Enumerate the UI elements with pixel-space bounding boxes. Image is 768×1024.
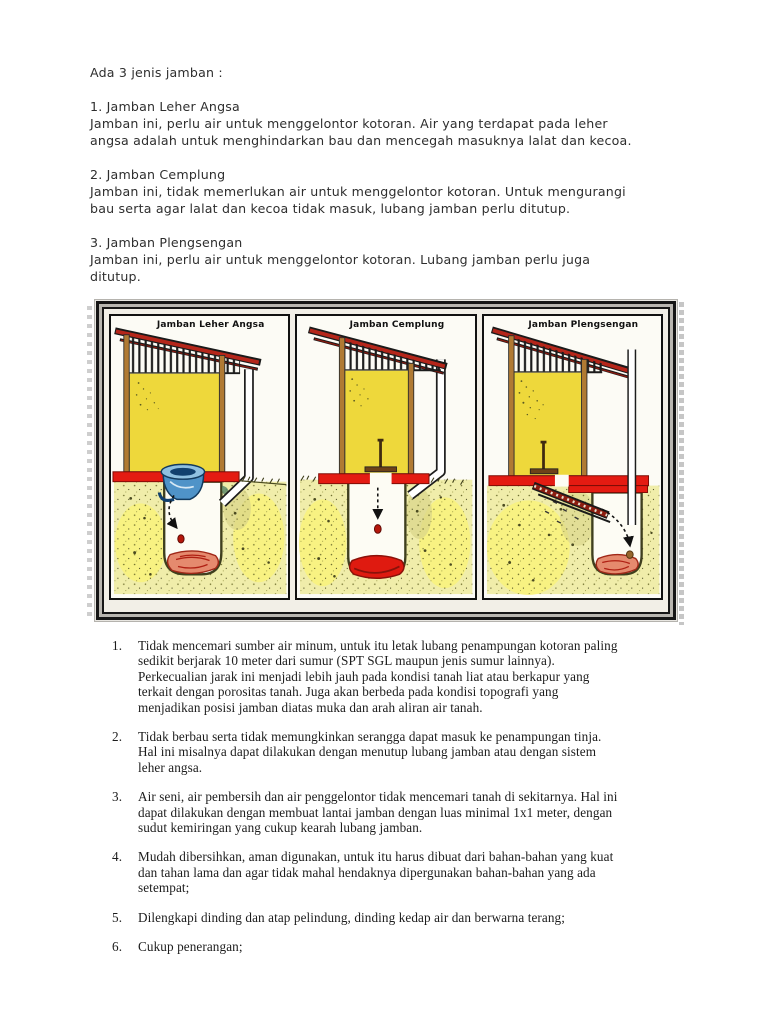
list-item-text: Cukup penerangan; <box>138 939 684 954</box>
requirements-list: 1. Tidak mencemari sumber air minum, unt… <box>112 638 684 969</box>
document-page: Ada 3 jenis jamban : 1. Jamban Leher Ang… <box>0 0 768 1024</box>
list-item: 2. Tidak berbau serta tidak memungkinkan… <box>112 729 684 775</box>
list-item: 3. Air seni, air pembersih dan air pengg… <box>112 789 684 835</box>
list-item-text: Air seni, air pembersih dan air penggelo… <box>138 789 684 835</box>
intro-paragraph-leher-angsa: 1. Jamban Leher Angsa Jamban ini, perlu … <box>90 98 690 149</box>
panel-cemplung: Jamban Cemplung <box>295 314 476 600</box>
list-item: 6. Cukup penerangan; <box>112 939 684 954</box>
list-item: 1. Tidak mencemari sumber air minum, unt… <box>112 638 684 715</box>
list-item: 4. Mudah dibersihkan, aman digunakan, un… <box>112 849 684 895</box>
list-item-number: 3. <box>112 789 138 835</box>
figure-frame: Jamban Leher Angsa <box>94 299 678 622</box>
latrine-diagram-leher-angsa-icon <box>111 316 288 598</box>
list-item-text: Dilengkapi dinding dan atap pelindung, d… <box>138 910 684 925</box>
list-item-text: Tidak mencemari sumber air minum, untuk … <box>138 638 684 715</box>
panel-title-plengsengan: Jamban Plengsengan <box>484 320 661 330</box>
intro-paragraph-cemplung: 2. Jamban Cemplung Jamban ini, tidak mem… <box>90 166 690 217</box>
scan-noise-right <box>679 302 684 625</box>
list-item-number: 1. <box>112 638 138 715</box>
list-item: 5. Dilengkapi dinding dan atap pelindung… <box>112 910 684 925</box>
list-item-text: Mudah dibersihkan, aman digunakan, untuk… <box>138 849 684 895</box>
latrine-diagram-cemplung-icon <box>297 316 474 598</box>
list-item-text: Tidak berbau serta tidak memungkinkan se… <box>138 729 684 775</box>
panel-leher-angsa: Jamban Leher Angsa <box>109 314 290 600</box>
panel-plengsengan: Jamban Plengsengan <box>482 314 663 600</box>
scan-noise-left <box>87 306 92 619</box>
latrine-diagram-plengsengan-icon <box>484 316 661 598</box>
intro-text: Ada 3 jenis jamban : 1. Jamban Leher Ang… <box>90 64 690 302</box>
panel-title-cemplung: Jamban Cemplung <box>297 320 474 330</box>
list-item-number: 5. <box>112 910 138 925</box>
list-item-number: 6. <box>112 939 138 954</box>
latrine-types-figure: Jamban Leher Angsa <box>94 299 678 622</box>
intro-lead: Ada 3 jenis jamban : <box>90 64 690 81</box>
panel-title-leher-angsa: Jamban Leher Angsa <box>111 320 288 330</box>
list-item-number: 2. <box>112 729 138 775</box>
intro-paragraph-plengsengan: 3. Jamban Plengsengan Jamban ini, perlu … <box>90 234 690 285</box>
list-item-number: 4. <box>112 849 138 895</box>
